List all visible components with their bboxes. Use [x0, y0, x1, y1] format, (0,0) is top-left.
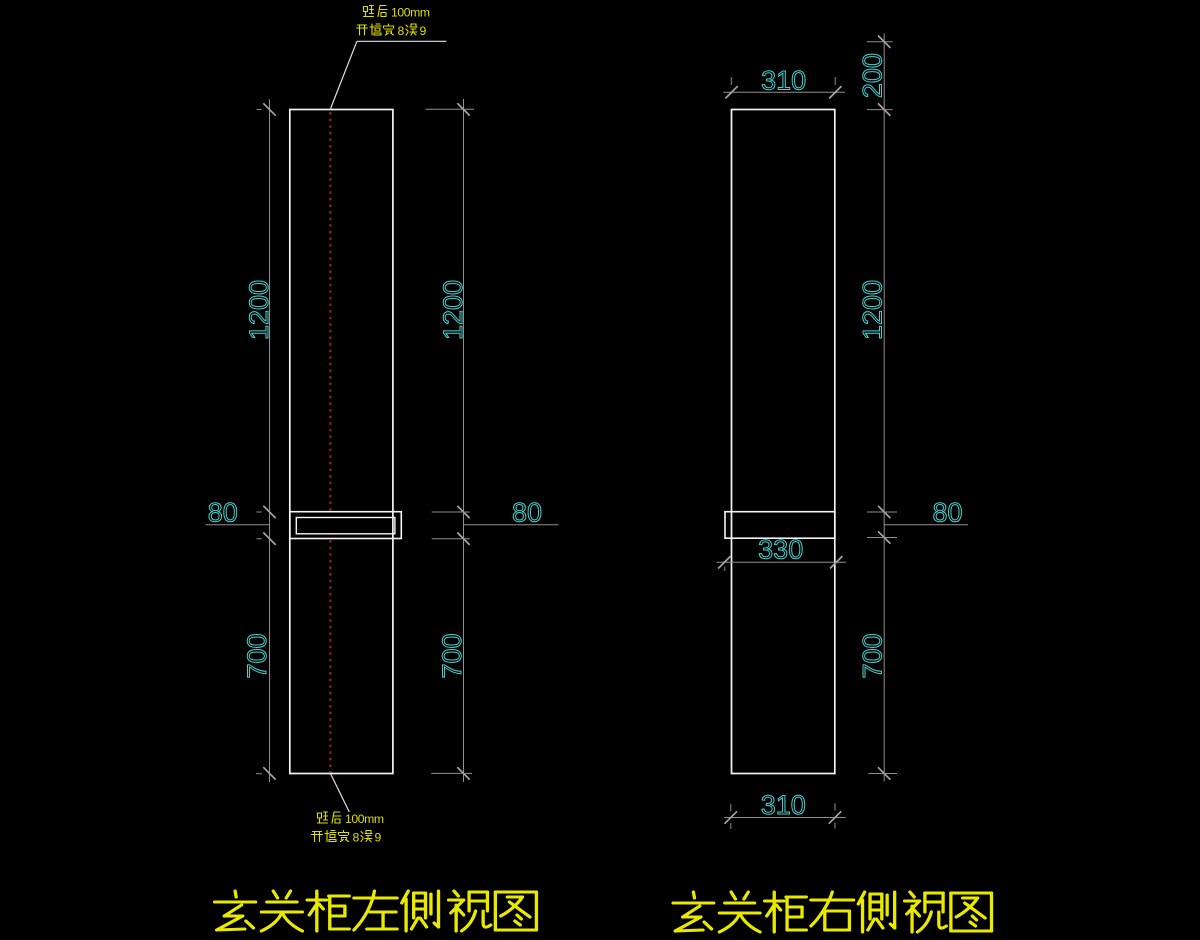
svg-text:700: 700 — [437, 633, 467, 678]
svg-text:100mm: 100mm — [391, 6, 430, 20]
svg-text:330: 330 — [758, 535, 803, 565]
svg-text:1200: 1200 — [244, 280, 274, 340]
svg-text:700: 700 — [242, 633, 272, 678]
svg-text:700: 700 — [857, 633, 887, 678]
svg-text:9: 9 — [420, 24, 427, 38]
svg-text:310: 310 — [761, 66, 806, 96]
svg-text:200: 200 — [857, 53, 887, 98]
svg-text:8: 8 — [353, 831, 360, 845]
svg-text:100mm: 100mm — [345, 812, 384, 826]
svg-text:80: 80 — [512, 498, 542, 528]
svg-text:310: 310 — [761, 790, 806, 820]
svg-text:1200: 1200 — [857, 280, 887, 340]
svg-text:9: 9 — [375, 831, 382, 845]
svg-text:1200: 1200 — [438, 280, 468, 340]
svg-text:8: 8 — [398, 24, 405, 38]
svg-text:80: 80 — [208, 498, 238, 528]
svg-text:80: 80 — [932, 498, 962, 528]
